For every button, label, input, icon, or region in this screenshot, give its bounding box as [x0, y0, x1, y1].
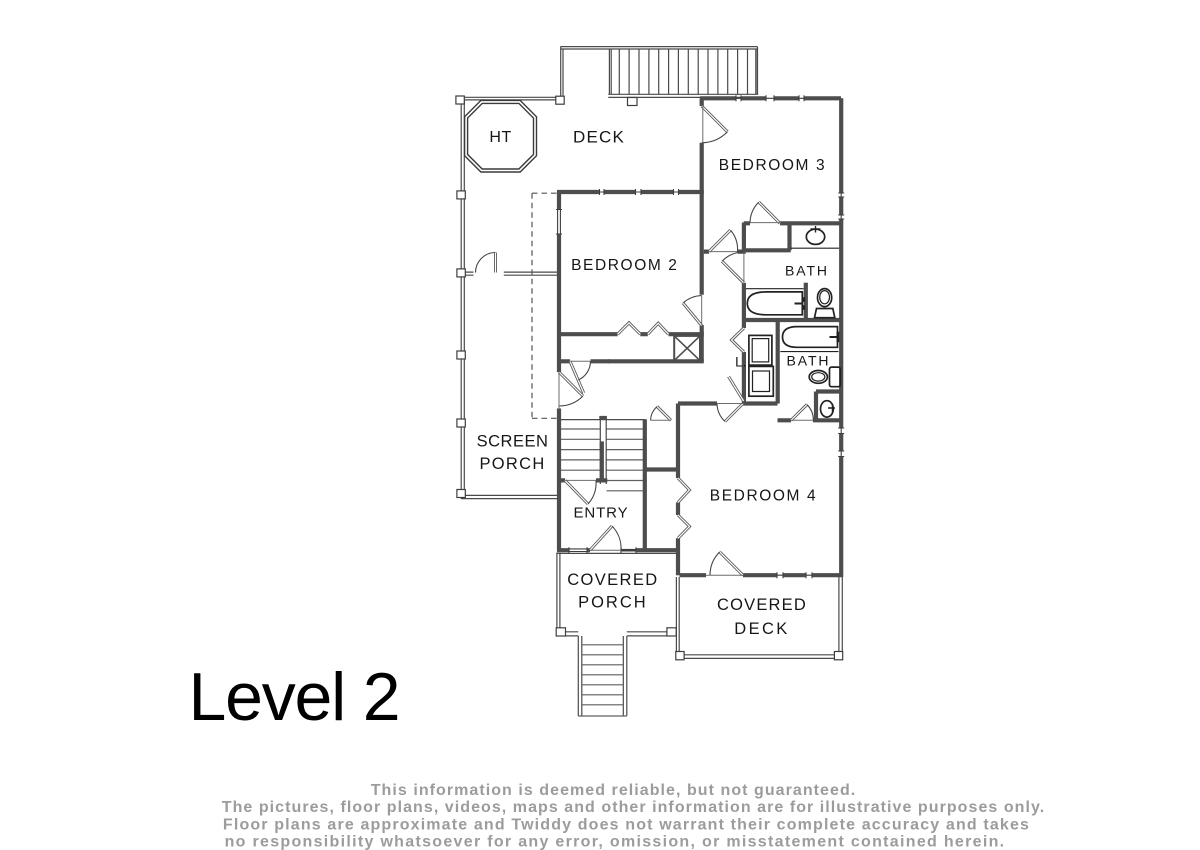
svg-text:BEDROOM 3: BEDROOM 3	[719, 157, 826, 174]
svg-text:DECK: DECK	[573, 128, 625, 147]
svg-text:ENTRY: ENTRY	[573, 505, 628, 522]
svg-text:The pictures, floor plans, vid: The pictures, floor plans, videos, maps …	[222, 799, 1045, 816]
svg-text:HT: HT	[489, 129, 511, 146]
svg-text:BATH: BATH	[785, 263, 829, 279]
svg-text:BATH: BATH	[787, 353, 831, 369]
svg-text:Level 2: Level 2	[189, 659, 400, 735]
svg-text:L.: L.	[735, 355, 746, 370]
svg-text:DECK: DECK	[734, 620, 789, 638]
svg-text:PORCH: PORCH	[578, 593, 648, 611]
svg-text:Floor plans are approximate an: Floor plans are approximate and Twiddy d…	[223, 816, 1030, 833]
svg-text:COVERED: COVERED	[717, 596, 807, 614]
svg-text:This information is deemed rel: This information is deemed reliable, but…	[371, 782, 857, 799]
svg-text:SCREEN: SCREEN	[477, 433, 549, 451]
svg-text:BEDROOM 4: BEDROOM 4	[710, 488, 817, 505]
svg-text:BEDROOM 2: BEDROOM 2	[571, 257, 678, 274]
svg-text:PORCH: PORCH	[479, 455, 545, 473]
svg-text:COVERED: COVERED	[567, 571, 658, 589]
svg-text:no responsibility whatsoever f: no responsibility whatsoever for any err…	[225, 834, 1006, 850]
